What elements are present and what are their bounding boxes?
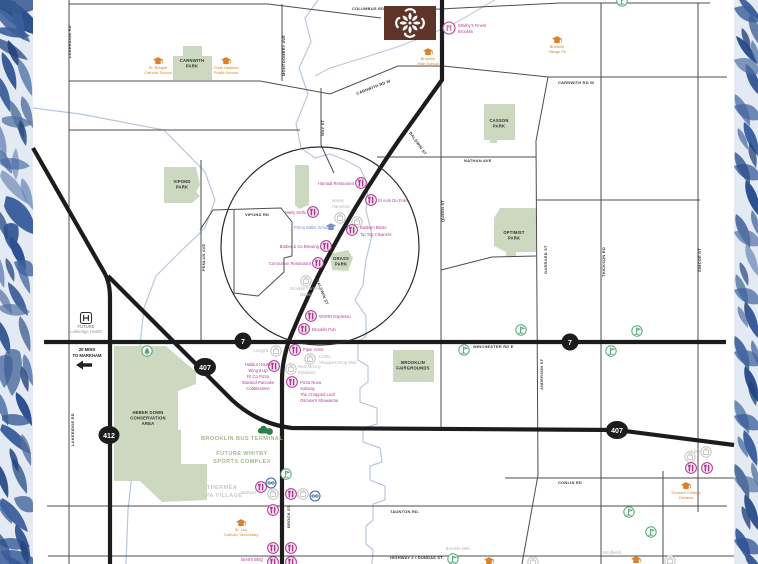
svg-text:Barber & Co Brewing: Barber & Co Brewing bbox=[280, 244, 320, 249]
svg-text:THICKSON RD: THICKSON RD bbox=[601, 247, 606, 277]
svg-text:HEBER DOWN: HEBER DOWN bbox=[132, 410, 163, 415]
svg-text:WINCHESTER RD E: WINCHESTER RD E bbox=[473, 344, 514, 349]
svg-text:PENLUN AVE: PENLUN AVE bbox=[201, 244, 206, 271]
svg-text:Hanly Delhi: Hanly Delhi bbox=[285, 210, 306, 215]
svg-text:Prima Ballet School: Prima Ballet School bbox=[294, 225, 331, 230]
svg-text:Brooklin Mills: Brooklin Mills bbox=[446, 546, 471, 551]
svg-text:SPA VILLAGE: SPA VILLAGE bbox=[201, 493, 242, 499]
svg-text:Brooklin Farmers: Brooklin Farmers bbox=[290, 286, 322, 291]
svg-text:VIPOND: VIPOND bbox=[173, 179, 190, 184]
svg-text:Brooklin Pub: Brooklin Pub bbox=[312, 327, 336, 332]
svg-text:Oshawa: Oshawa bbox=[679, 495, 694, 500]
svg-text:THERMËA: THERMËA bbox=[207, 484, 237, 491]
svg-text:AREA: AREA bbox=[142, 421, 155, 426]
svg-text:FUTURE WHITBY: FUTURE WHITBY bbox=[216, 451, 268, 457]
svg-text:7: 7 bbox=[568, 340, 572, 347]
svg-text:Hammam: Hammam bbox=[332, 204, 351, 209]
svg-text:CARNWITH: CARNWITH bbox=[180, 58, 204, 63]
svg-text:CONLIN RD: CONLIN RD bbox=[558, 480, 582, 485]
svg-text:Tip Top Cleaners: Tip Top Cleaners bbox=[360, 232, 391, 237]
svg-text:High School: High School bbox=[417, 61, 439, 66]
svg-text:LAKERIDGE RD: LAKERIDGE RD bbox=[67, 25, 72, 58]
svg-text:407: 407 bbox=[199, 365, 211, 372]
svg-text:Piper Arms: Piper Arms bbox=[303, 347, 323, 352]
svg-text:Public School: Public School bbox=[214, 70, 238, 75]
svg-text:FAIRGROUNDS: FAIRGROUNDS bbox=[396, 366, 429, 371]
svg-text:Stacked Pancake: Stacked Pancake bbox=[242, 380, 275, 385]
svg-text:CONSERVATION: CONSERVATION bbox=[130, 416, 165, 421]
svg-text:Village Pk: Village Pk bbox=[548, 49, 566, 54]
svg-text:20 MINS: 20 MINS bbox=[79, 347, 95, 352]
svg-text:OPTIMIST: OPTIMIST bbox=[503, 230, 525, 235]
svg-text:Lakeridge Health: Lakeridge Health bbox=[70, 329, 102, 334]
svg-text:Osmow's Shawarma: Osmow's Shawarma bbox=[300, 398, 339, 403]
svg-text:Market: Market bbox=[300, 292, 314, 297]
svg-text:SIMCOE ST: SIMCOE ST bbox=[697, 248, 702, 272]
svg-text:Longo's: Longo's bbox=[253, 348, 268, 353]
svg-text:TAUNTON RD.: TAUNTON RD. bbox=[390, 509, 419, 514]
svg-text:WAY ST: WAY ST bbox=[320, 120, 325, 136]
svg-text:GRASS: GRASS bbox=[333, 256, 349, 261]
svg-text:412: 412 bbox=[103, 433, 115, 440]
svg-text:CARNWITH RD W: CARNWITH RD W bbox=[558, 80, 594, 85]
svg-text:LAKERIDGE RD: LAKERIDGE RD bbox=[70, 413, 75, 446]
svg-text:The Chopped Leaf: The Chopped Leaf bbox=[300, 392, 336, 397]
svg-text:Fit Co Pizza: Fit Co Pizza bbox=[247, 374, 270, 379]
svg-text:Eataliano: Eataliano bbox=[298, 370, 316, 375]
svg-text:Shoppers Drug Mart: Shoppers Drug Mart bbox=[319, 360, 358, 365]
svg-text:HIGHWAY 2 / DUNDAS ST.: HIGHWAY 2 / DUNDAS ST. bbox=[390, 555, 444, 560]
svg-text:Subway: Subway bbox=[300, 386, 316, 391]
svg-text:PARK: PARK bbox=[493, 124, 505, 129]
svg-text:Walmart: Walmart bbox=[241, 490, 257, 495]
svg-text:Catholic School: Catholic School bbox=[144, 70, 172, 75]
svg-text:PARK: PARK bbox=[186, 64, 198, 69]
svg-text:Brooklin: Brooklin bbox=[458, 29, 474, 34]
svg-text:Wing'd Up: Wing'd Up bbox=[248, 368, 268, 373]
svg-text:Windfields: Windfields bbox=[602, 550, 621, 555]
svg-text:Brett's BBQ: Brett's BBQ bbox=[241, 557, 263, 562]
svg-text:LCBO: LCBO bbox=[319, 354, 331, 359]
svg-text:TO MARKHAM: TO MARKHAM bbox=[73, 353, 103, 358]
svg-text:NATHAN AVE: NATHAN AVE bbox=[464, 158, 492, 163]
svg-text:ANDERSON ST: ANDERSON ST bbox=[539, 358, 544, 390]
svg-text:Whitby's Finest: Whitby's Finest bbox=[458, 23, 487, 28]
svg-text:Pizza Nova: Pizza Nova bbox=[300, 380, 322, 385]
svg-text:QUEEN ST: QUEEN ST bbox=[440, 200, 445, 222]
svg-text:7: 7 bbox=[241, 339, 245, 346]
svg-text:SPORTS COMPLEX: SPORTS COMPLEX bbox=[213, 459, 271, 465]
svg-text:Catholic Secondary: Catholic Secondary bbox=[224, 532, 259, 537]
svg-text:BROOKLIN BUS TERMINAL: BROOKLIN BUS TERMINAL bbox=[201, 436, 283, 442]
svg-text:PARK: PARK bbox=[335, 262, 347, 267]
svg-text:Cobblestone: Cobblestone bbox=[246, 386, 270, 391]
svg-text:El Aulo Du Folio: El Aulo Du Folio bbox=[378, 198, 408, 203]
svg-text:BROCK ST.: BROCK ST. bbox=[286, 505, 291, 528]
svg-text:Halibut House: Halibut House bbox=[245, 362, 272, 367]
svg-text:COLUMBUS RD W: COLUMBUS RD W bbox=[352, 6, 390, 11]
svg-text:CASSON: CASSON bbox=[489, 118, 508, 123]
svg-text:Hamadi Restaurant: Hamadi Restaurant bbox=[318, 181, 355, 186]
svg-text:BROOKLIN: BROOKLIN bbox=[401, 360, 425, 365]
svg-text:Coronation Restaurant: Coronation Restaurant bbox=[269, 261, 312, 266]
svg-text:Baldwin Bistro: Baldwin Bistro bbox=[360, 225, 387, 230]
svg-text:Real McCoy: Real McCoy bbox=[298, 364, 322, 369]
svg-text:VIPOND RD: VIPOND RD bbox=[245, 212, 269, 217]
svg-text:WORN Espresso: WORN Espresso bbox=[319, 314, 352, 319]
svg-text:Marva: Marva bbox=[332, 198, 344, 203]
svg-text:PARK: PARK bbox=[508, 236, 520, 241]
svg-text:407: 407 bbox=[611, 428, 623, 435]
svg-text:MONTGOMERY AVE: MONTGOMERY AVE bbox=[281, 35, 286, 76]
svg-text:GARRARD ST: GARRARD ST bbox=[543, 245, 548, 274]
svg-text:PARK: PARK bbox=[176, 185, 188, 190]
